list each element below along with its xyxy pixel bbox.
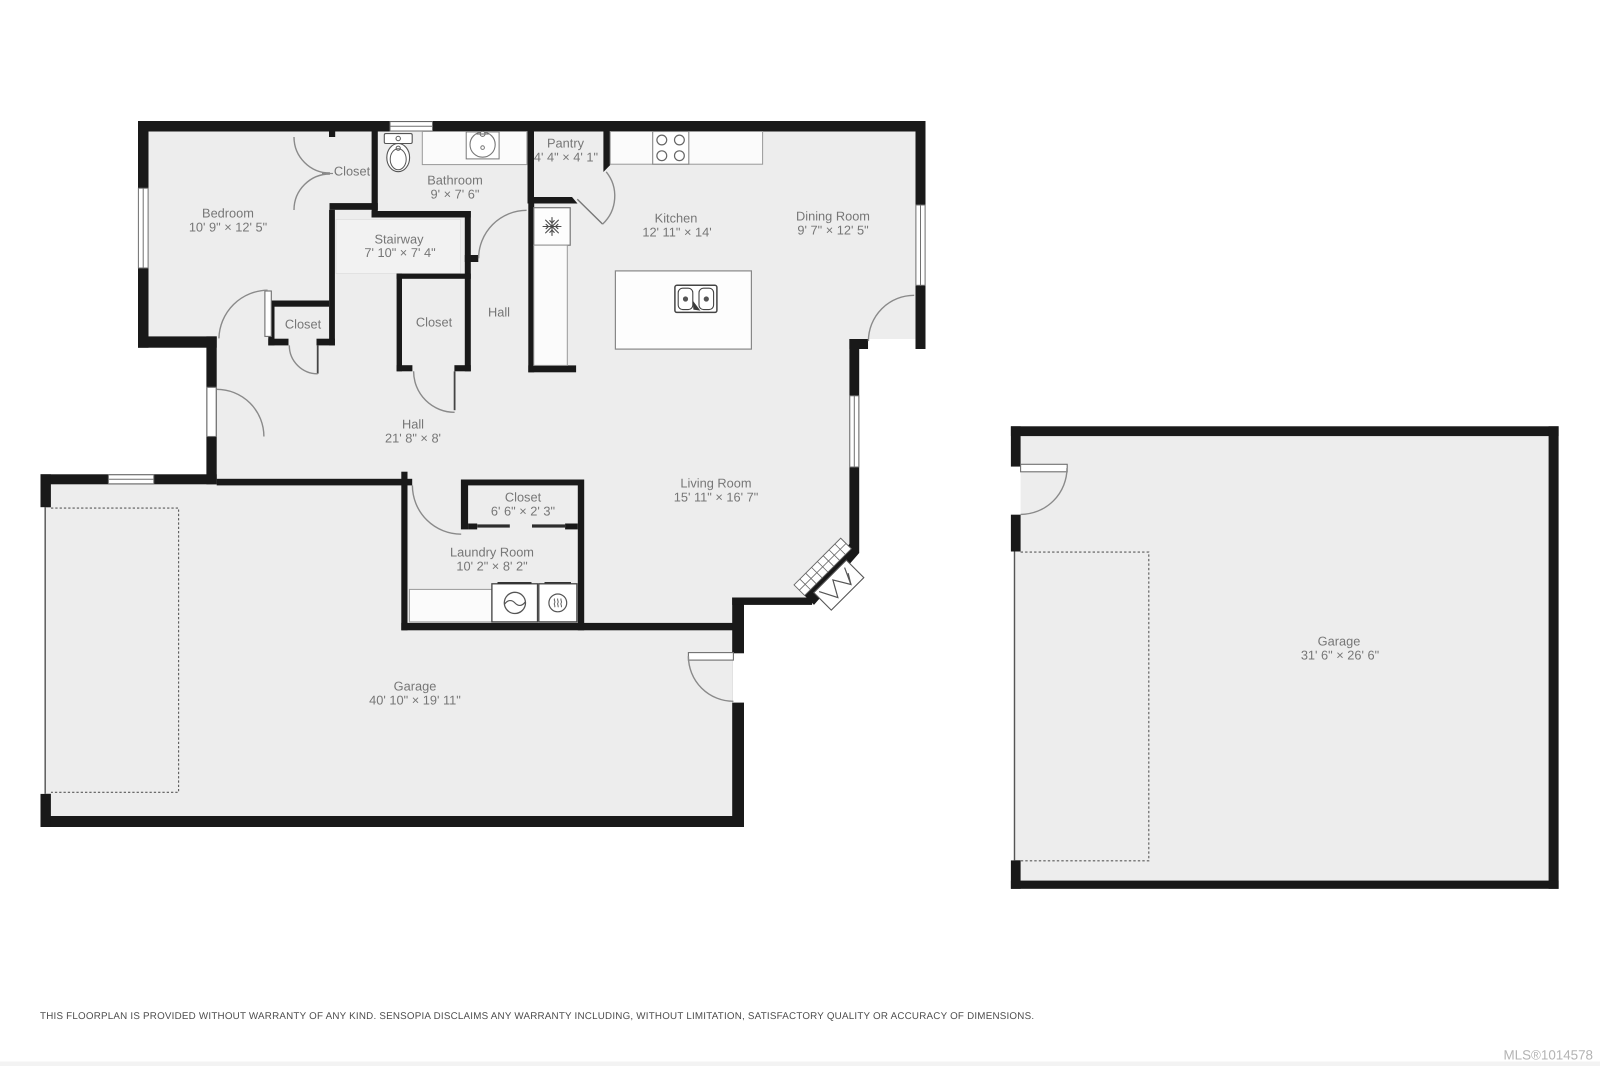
svg-text:Garage: Garage <box>1318 634 1361 649</box>
svg-text:Pantry: Pantry <box>547 136 585 151</box>
svg-text:Bedroom: Bedroom <box>202 206 254 221</box>
svg-text:7' 10" × 7' 4": 7' 10" × 7' 4" <box>364 245 435 260</box>
svg-text:MLS®1014578: MLS®1014578 <box>1503 1048 1593 1063</box>
svg-text:Closet: Closet <box>285 317 322 332</box>
svg-text:21' 8" × 8': 21' 8" × 8' <box>385 431 441 446</box>
svg-text:THIS FLOORPLAN IS PROVIDED WIT: THIS FLOORPLAN IS PROVIDED WITHOUT WARRA… <box>40 1011 1034 1022</box>
svg-text:4' 4" × 4' 1": 4' 4" × 4' 1" <box>534 150 598 165</box>
svg-text:Bathroom: Bathroom <box>427 173 482 188</box>
svg-text:9' 7" × 12' 5": 9' 7" × 12' 5" <box>797 223 868 238</box>
svg-text:10' 9" × 12' 5": 10' 9" × 12' 5" <box>189 220 267 235</box>
svg-text:Garage: Garage <box>394 679 437 694</box>
svg-text:Living Room: Living Room <box>680 476 751 491</box>
svg-text:Dining Room: Dining Room <box>796 209 870 224</box>
svg-text:Laundry Room: Laundry Room <box>450 545 534 560</box>
svg-text:Closet: Closet <box>505 490 542 505</box>
svg-text:12' 11" × 14': 12' 11" × 14' <box>642 225 711 240</box>
svg-text:10' 2" × 8' 2": 10' 2" × 8' 2" <box>456 559 527 574</box>
svg-text:15' 11" × 16' 7": 15' 11" × 16' 7" <box>674 490 759 505</box>
svg-text:Hall: Hall <box>402 417 424 432</box>
svg-text:Hall: Hall <box>488 305 510 320</box>
svg-text:31' 6" × 26' 6": 31' 6" × 26' 6" <box>1301 648 1379 663</box>
svg-text:40' 10" × 19' 11": 40' 10" × 19' 11" <box>369 693 461 708</box>
svg-text:Closet: Closet <box>416 315 453 330</box>
svg-text:Closet: Closet <box>334 164 371 179</box>
svg-text:9' × 7' 6": 9' × 7' 6" <box>431 187 480 202</box>
svg-text:6' 6" × 2' 3": 6' 6" × 2' 3" <box>491 504 555 519</box>
svg-text:Kitchen: Kitchen <box>655 211 698 226</box>
